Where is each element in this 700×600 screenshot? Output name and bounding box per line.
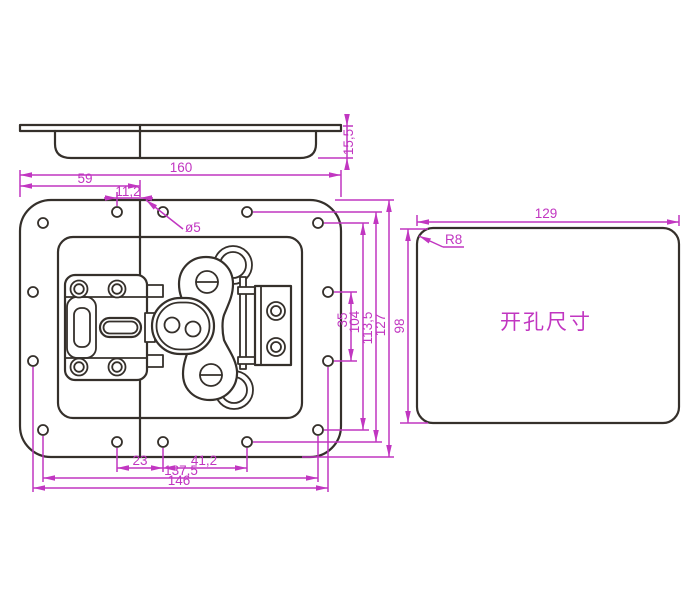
dim-cutout-corner-radius: R8 xyxy=(445,232,462,247)
rivet-hole xyxy=(267,338,285,356)
dim-hole-center-offset: 11,2 xyxy=(115,184,140,199)
latch-technical-drawing: 15,5 xyxy=(0,0,700,600)
drawing-canvas: 15,5 xyxy=(0,0,700,600)
dim-cutout-height: 98 xyxy=(392,318,407,333)
dim-cutout-width: 129 xyxy=(535,206,558,221)
turn-knob xyxy=(152,298,214,354)
dim-overall-height: 127 xyxy=(373,314,388,337)
cutout-label: 开孔尺寸 xyxy=(500,311,592,334)
front-view xyxy=(20,200,341,457)
rivet-hole xyxy=(109,359,126,376)
dim-side-hole-pitch-h: 146 xyxy=(168,473,191,488)
flange-profile xyxy=(20,125,341,131)
dim-bottom-pitch-a: 23 xyxy=(132,453,147,468)
rivet-hole xyxy=(71,359,88,376)
side-profile-view xyxy=(20,125,341,158)
rivet-hole xyxy=(267,302,285,320)
rivet-hole xyxy=(71,281,88,298)
dim-center-offset: 59 xyxy=(77,171,92,186)
cutout-view: 开孔尺寸 129 98 R8 xyxy=(392,206,679,423)
dim-hole-diameter: ø5 xyxy=(185,220,201,235)
pan-profile xyxy=(55,131,316,158)
dim-profile-height: 15,5 xyxy=(341,129,356,155)
rivet-hole xyxy=(109,281,126,298)
profile-dimension-lines: 15,5 xyxy=(318,114,356,170)
dim-overall-width: 160 xyxy=(170,160,193,175)
